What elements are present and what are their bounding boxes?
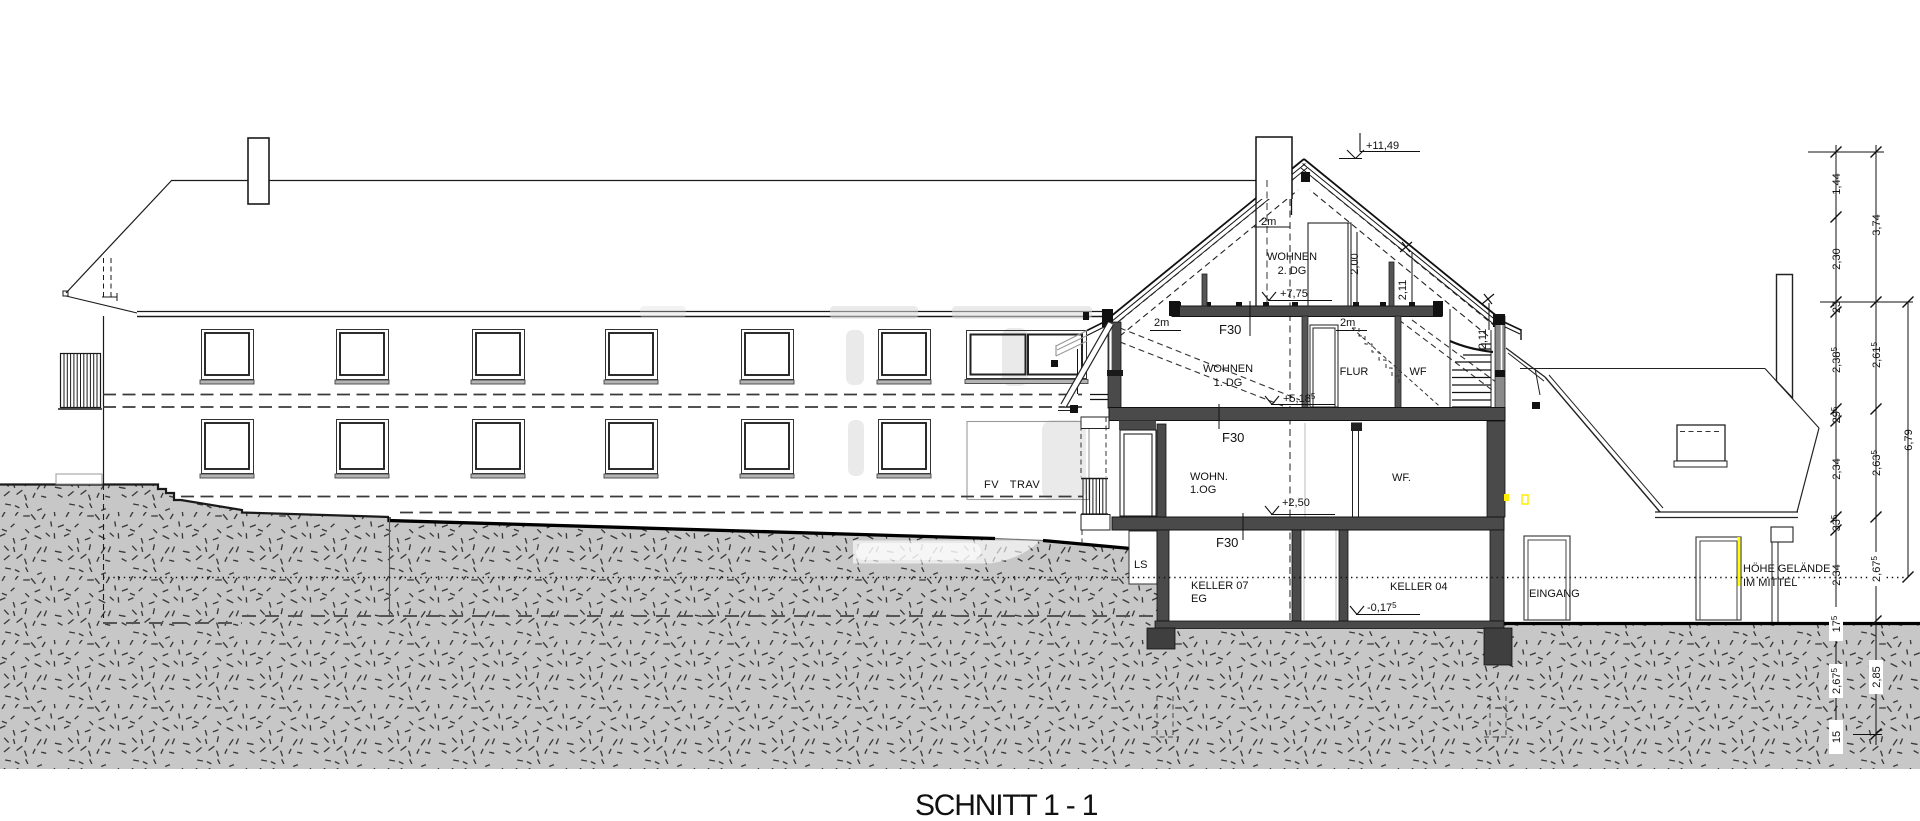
svg-text:FLUR: FLUR	[1340, 366, 1369, 378]
svg-text:2,635: 2,635	[1870, 450, 1883, 476]
svg-text:23: 23	[1831, 301, 1843, 313]
svg-text:6,79: 6,79	[1903, 429, 1915, 450]
svg-text:+2,50: +2,50	[1282, 497, 1310, 509]
svg-text:15: 15	[1831, 731, 1843, 743]
svg-text:EINGANG: EINGANG	[1529, 588, 1580, 600]
svg-text:2,34: 2,34	[1831, 564, 1843, 585]
svg-text:1.OG: 1.OG	[1190, 484, 1216, 496]
svg-text:HÖHE GELÄNDE: HÖHE GELÄNDE	[1743, 563, 1830, 575]
svg-text:EG: EG	[1191, 593, 1207, 605]
svg-text:KELLER 07: KELLER 07	[1191, 580, 1248, 592]
svg-text:+7,75: +7,75	[1280, 288, 1308, 300]
svg-text:1,44: 1,44	[1831, 173, 1843, 194]
svg-text:WF: WF	[1409, 366, 1426, 378]
svg-text:2,11: 2,11	[1397, 280, 1409, 301]
svg-text:KELLER 04: KELLER 04	[1390, 581, 1447, 593]
svg-text:2,85: 2,85	[1871, 666, 1883, 687]
svg-text:WF.: WF.	[1392, 472, 1411, 484]
svg-text:2,00: 2,00	[1349, 253, 1361, 274]
svg-text:2m: 2m	[1154, 317, 1169, 329]
svg-text:2,385: 2,385	[1830, 347, 1843, 373]
svg-text:FV TRAV: FV TRAV	[984, 479, 1040, 491]
svg-text:2m: 2m	[1261, 216, 1276, 228]
svg-text:+11,49: +11,49	[1366, 140, 1399, 152]
svg-text:335: 335	[1830, 514, 1843, 531]
svg-text:IM MITTEL: IM MITTEL	[1743, 577, 1797, 589]
svg-text:LS: LS	[1134, 559, 1147, 571]
svg-text:295: 295	[1830, 406, 1843, 423]
svg-text:F30: F30	[1219, 322, 1241, 337]
svg-text:WOHN.: WOHN.	[1190, 471, 1228, 483]
svg-text:2,30: 2,30	[1831, 248, 1843, 269]
svg-text:2m: 2m	[1340, 317, 1355, 329]
svg-text:WOHNEN: WOHNEN	[1203, 363, 1253, 375]
svg-text:F30: F30	[1222, 430, 1244, 445]
svg-text:2. DG: 2. DG	[1278, 265, 1307, 277]
svg-text:2,615: 2,615	[1870, 342, 1883, 368]
svg-text:SCHNITT 1 - 1: SCHNITT 1 - 1	[915, 789, 1098, 821]
svg-text:-0,175: -0,175	[1367, 601, 1397, 614]
svg-text:2,34: 2,34	[1831, 458, 1843, 479]
svg-text:WOHNEN: WOHNEN	[1267, 251, 1317, 263]
svg-text:F30: F30	[1216, 535, 1238, 550]
svg-text:2,11: 2,11	[1477, 329, 1489, 350]
svg-text:3,74: 3,74	[1871, 214, 1883, 235]
svg-text:1. DG: 1. DG	[1214, 377, 1243, 389]
svg-text:+5,185: +5,185	[1283, 392, 1316, 405]
